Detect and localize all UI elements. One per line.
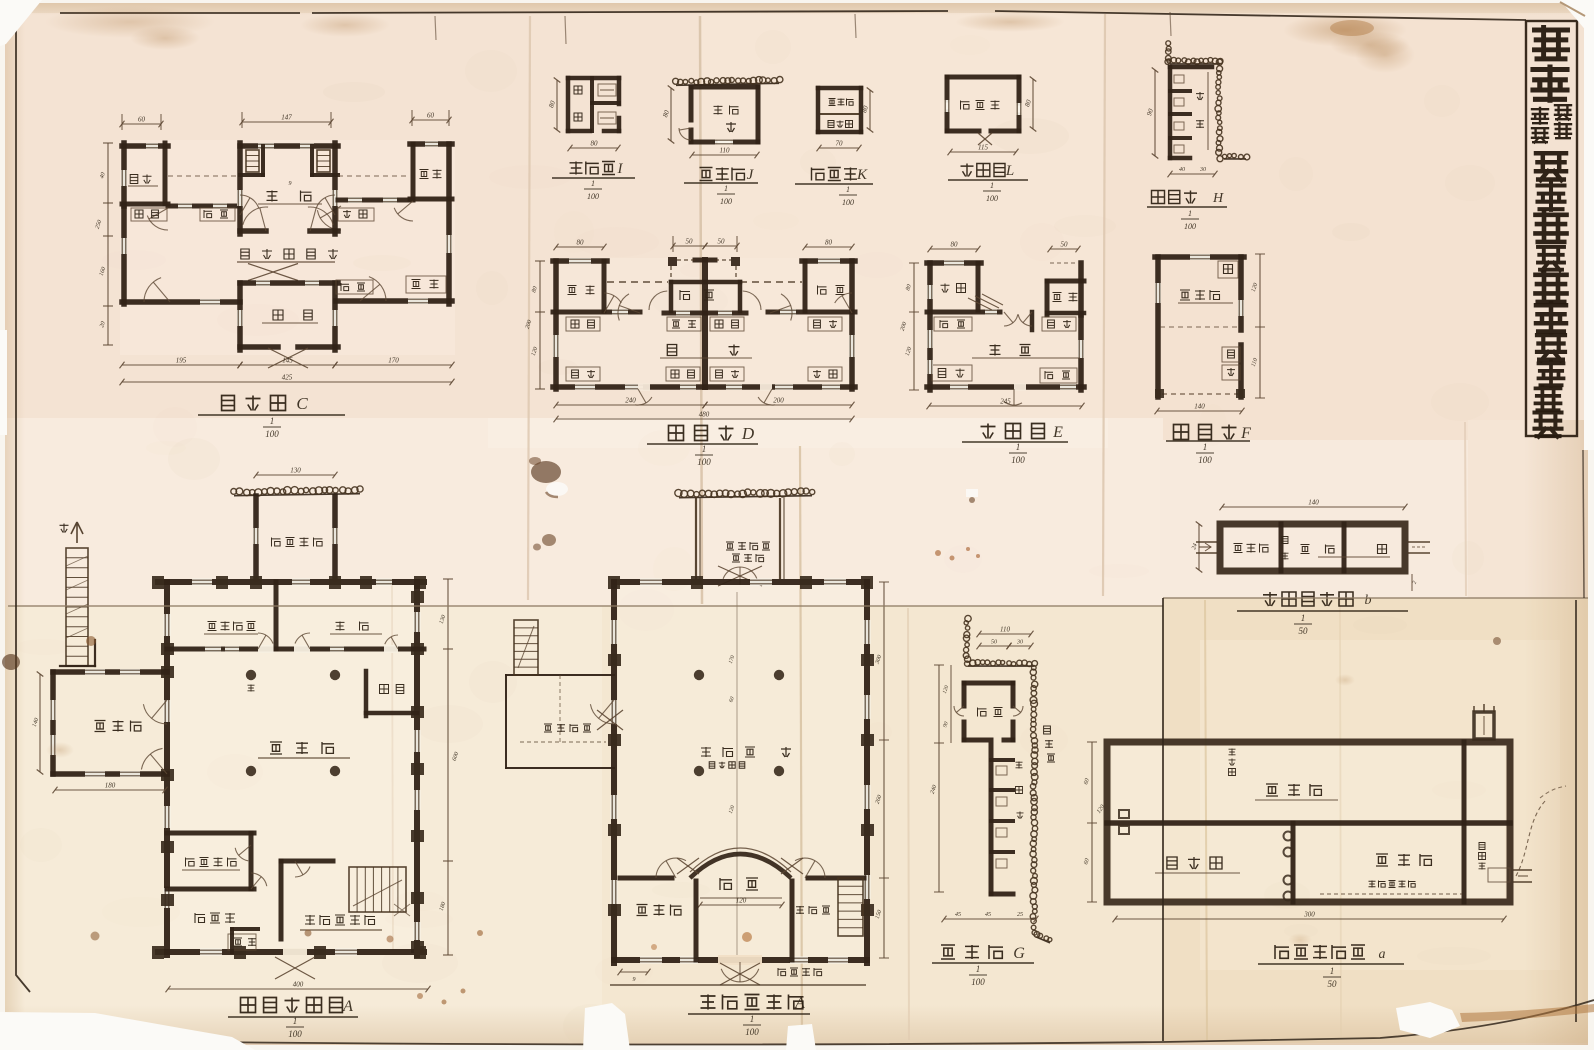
svg-text:70: 70 xyxy=(836,140,844,148)
svg-text:1: 1 xyxy=(976,964,981,974)
svg-text:A: A xyxy=(342,998,353,1015)
svg-text:245: 245 xyxy=(1000,398,1011,406)
svg-text:80: 80 xyxy=(577,239,585,247)
svg-text:50: 50 xyxy=(718,238,726,246)
svg-text:100: 100 xyxy=(587,192,599,201)
svg-text:1: 1 xyxy=(990,181,994,190)
svg-text:60: 60 xyxy=(138,116,146,124)
svg-text:D: D xyxy=(741,424,755,443)
svg-text:195: 195 xyxy=(176,357,187,365)
svg-text:170: 170 xyxy=(388,357,399,365)
svg-text:50: 50 xyxy=(686,238,694,246)
svg-text:9: 9 xyxy=(633,977,636,983)
svg-text:110: 110 xyxy=(1000,626,1010,634)
svg-text:100: 100 xyxy=(745,1027,759,1037)
svg-text:100: 100 xyxy=(971,977,985,987)
svg-text:30: 30 xyxy=(1199,167,1206,173)
svg-text:30: 30 xyxy=(1016,640,1023,646)
svg-text:1: 1 xyxy=(750,1014,755,1024)
svg-text:140: 140 xyxy=(1308,499,1319,507)
svg-text:1: 1 xyxy=(1188,209,1192,218)
svg-text:45: 45 xyxy=(985,911,991,918)
svg-text:180: 180 xyxy=(105,782,116,790)
svg-text:140: 140 xyxy=(1194,403,1205,411)
svg-text:A: A xyxy=(794,995,805,1012)
svg-text:b: b xyxy=(1365,593,1372,608)
svg-text:45: 45 xyxy=(955,911,961,918)
svg-text:425: 425 xyxy=(282,374,293,382)
svg-text:1: 1 xyxy=(846,185,850,194)
svg-text:C: C xyxy=(296,394,308,413)
svg-text:1: 1 xyxy=(293,1016,298,1026)
svg-text:100: 100 xyxy=(1198,455,1212,465)
svg-text:115: 115 xyxy=(978,144,988,152)
svg-text:100: 100 xyxy=(720,197,732,206)
svg-text:50: 50 xyxy=(991,640,997,646)
svg-text:147: 147 xyxy=(281,114,292,122)
svg-text:240: 240 xyxy=(625,397,636,405)
svg-text:G: G xyxy=(1013,945,1025,962)
svg-text:100: 100 xyxy=(697,457,711,467)
svg-text:40: 40 xyxy=(1179,166,1185,173)
svg-text:L: L xyxy=(1005,163,1014,179)
svg-text:50: 50 xyxy=(1328,979,1338,989)
svg-text:50: 50 xyxy=(1061,241,1069,249)
svg-text:1: 1 xyxy=(591,179,595,188)
svg-text:a: a xyxy=(1379,947,1386,962)
svg-text:100: 100 xyxy=(288,1029,302,1039)
svg-text:110: 110 xyxy=(720,147,730,155)
svg-text:60: 60 xyxy=(427,112,435,120)
svg-text:1: 1 xyxy=(724,184,728,193)
svg-text:H: H xyxy=(1212,191,1224,206)
svg-text:80: 80 xyxy=(591,140,599,148)
svg-text:I: I xyxy=(617,161,624,177)
svg-text:200: 200 xyxy=(773,397,784,405)
svg-text:K: K xyxy=(856,167,868,183)
svg-text:1: 1 xyxy=(1016,442,1021,452)
svg-text:1: 1 xyxy=(270,416,275,426)
svg-text:E: E xyxy=(1052,424,1063,441)
svg-text:50: 50 xyxy=(1299,626,1309,636)
svg-text:1: 1 xyxy=(1203,442,1208,452)
svg-text:145: 145 xyxy=(282,357,293,365)
svg-text:300: 300 xyxy=(1303,911,1315,919)
svg-text:25: 25 xyxy=(1017,912,1023,918)
svg-text:9: 9 xyxy=(289,181,292,187)
svg-text:400: 400 xyxy=(293,981,304,989)
svg-text:80: 80 xyxy=(825,239,833,247)
svg-text:1: 1 xyxy=(702,444,707,454)
svg-text:F: F xyxy=(1240,425,1251,442)
svg-text:100: 100 xyxy=(842,198,854,207)
svg-text:480: 480 xyxy=(699,411,710,419)
svg-text:130: 130 xyxy=(290,467,301,475)
svg-text:100: 100 xyxy=(1011,455,1025,465)
svg-text:1: 1 xyxy=(1330,966,1335,976)
svg-text:100: 100 xyxy=(265,429,279,439)
svg-text:100: 100 xyxy=(1184,222,1196,231)
svg-text:1: 1 xyxy=(1301,613,1306,623)
svg-text:120: 120 xyxy=(736,897,747,905)
svg-text:80: 80 xyxy=(951,241,959,249)
svg-text:100: 100 xyxy=(986,194,998,203)
